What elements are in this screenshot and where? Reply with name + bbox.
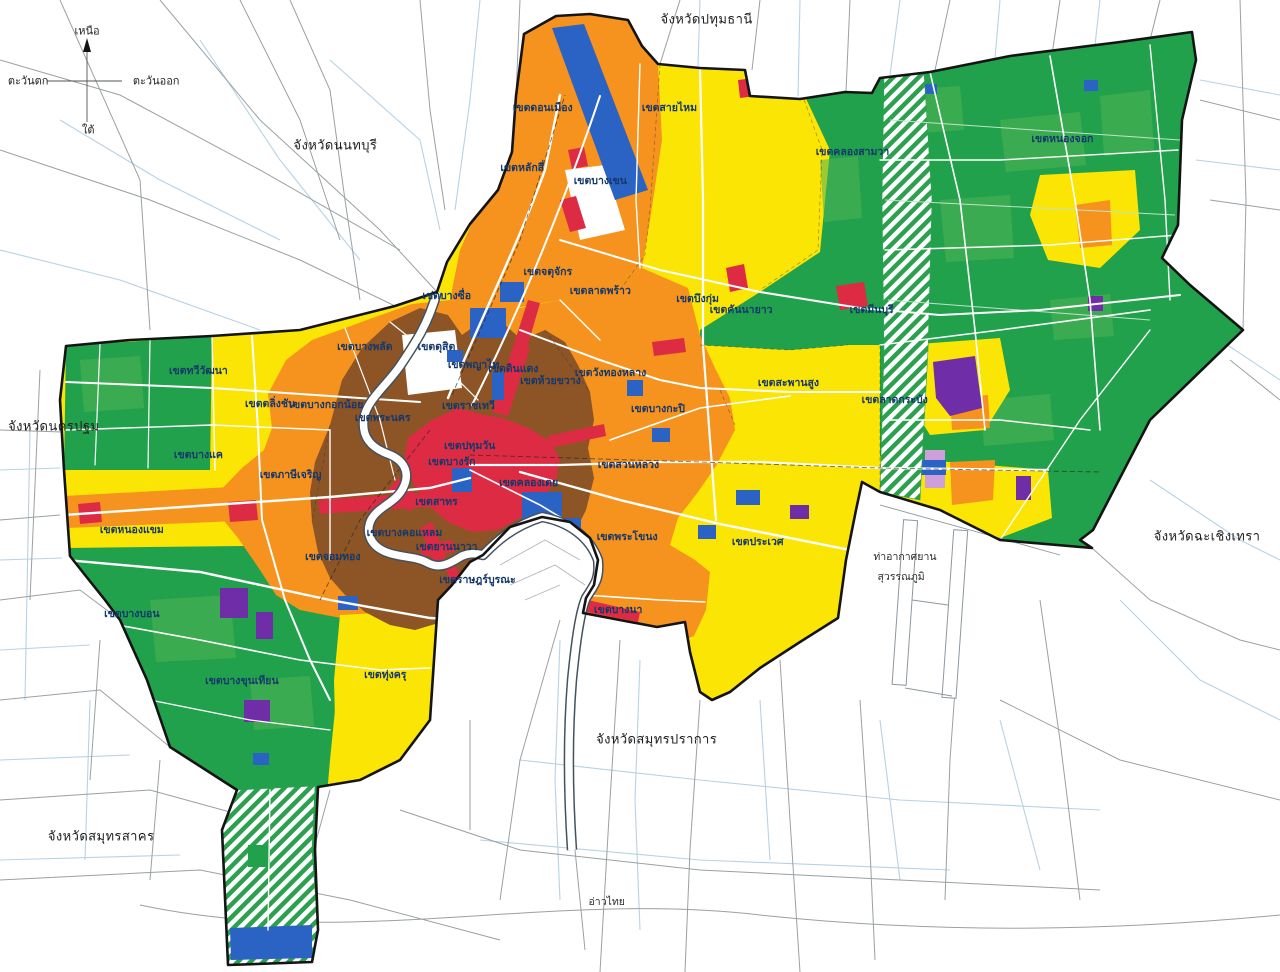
bang-krachao-pocket bbox=[500, 540, 585, 600]
north-arrow-icon bbox=[83, 38, 91, 52]
landuse-zones bbox=[0, 0, 1280, 972]
zone-yellow-thungkhru bbox=[334, 610, 433, 778]
map-screenshot: เหนือตะวันตกตะวันออกใต้จังหวัดปทุมธานีจั… bbox=[0, 0, 1280, 972]
zone-green-patch-spike bbox=[248, 845, 270, 867]
compass-rose bbox=[47, 38, 122, 122]
zone-coastal-blue-bar bbox=[230, 925, 312, 960]
bangkok-landuse-map bbox=[0, 0, 1280, 972]
